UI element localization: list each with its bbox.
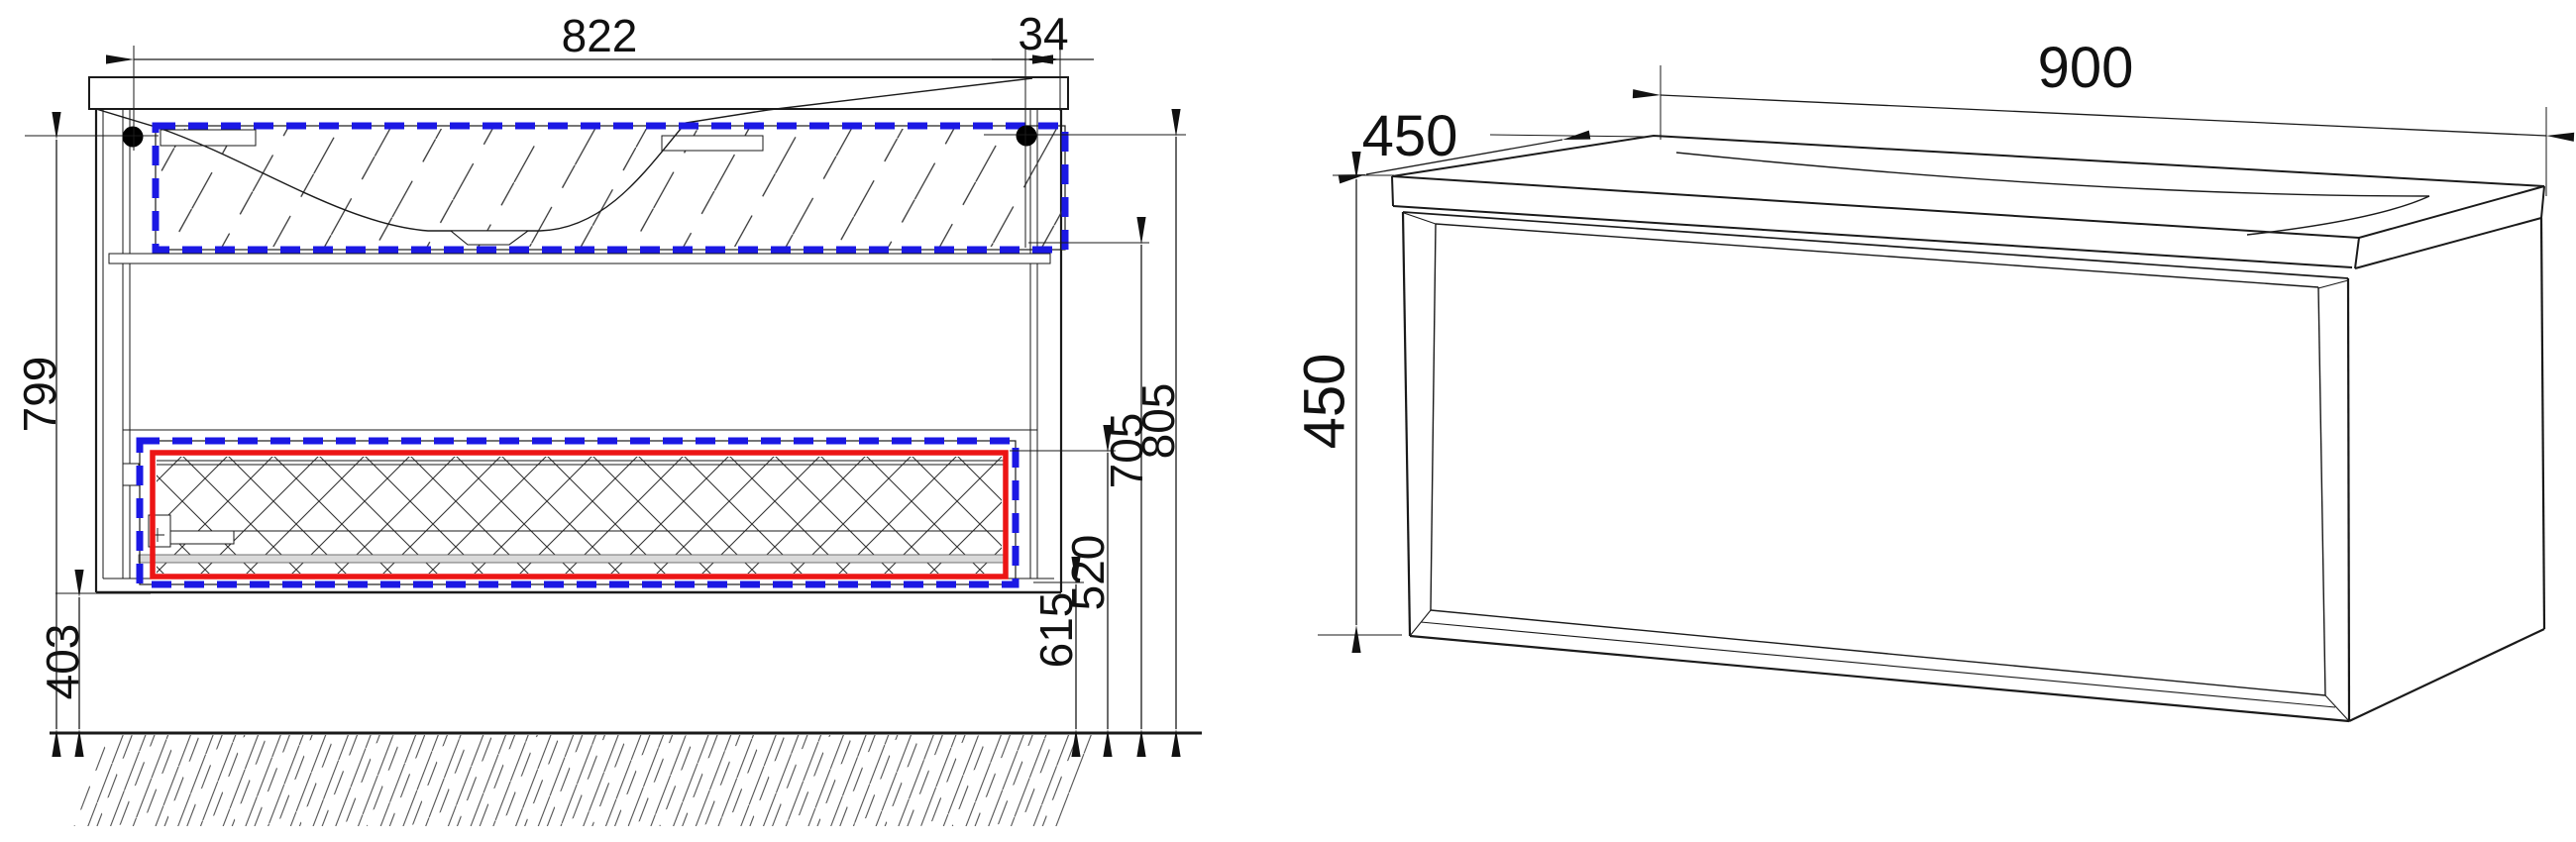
cabinet-front-face: [1403, 212, 2349, 721]
dim-label-805: 805: [1132, 383, 1184, 460]
front-elevation-view: 822 34 799 403 615 520 705 805: [14, 8, 1202, 826]
dim-label-520: 520: [1062, 535, 1114, 611]
mount-rail-left: [161, 130, 256, 146]
drawer-section-zone: [123, 441, 1016, 584]
dim-label-900: 900: [2038, 36, 2134, 100]
dim-label-height-450: 450: [1293, 354, 1357, 450]
perspective-view: 900 450 450: [1293, 36, 2547, 721]
drawer-runner: [139, 555, 1004, 563]
ground-hatch: [69, 735, 1098, 826]
mount-rail-right: [662, 136, 763, 151]
front-view-dimension-labels: 822 34 799 403 615 520 705 805: [14, 8, 1184, 699]
cabinet-side-face: [2349, 218, 2544, 721]
countertop-section: [89, 77, 1068, 109]
countertop-top-face: [1392, 136, 2544, 238]
dim-label-34: 34: [1018, 8, 1068, 59]
dim-label-403: 403: [37, 624, 88, 700]
dim-label-822: 822: [562, 10, 638, 61]
fixing-dot-left: [123, 127, 144, 148]
drawer-side-panel: [161, 531, 234, 544]
dim-line-900: [1661, 95, 2546, 136]
drawing-canvas: 822 34 799 403 615 520 705 805: [0, 0, 2576, 842]
dim-label-799: 799: [14, 357, 65, 433]
fixing-dot-right: [1017, 126, 1037, 147]
dim-label-depth-450: 450: [1362, 104, 1458, 168]
technical-drawing-svg: 822 34 799 403 615 520 705 805: [0, 0, 2576, 842]
